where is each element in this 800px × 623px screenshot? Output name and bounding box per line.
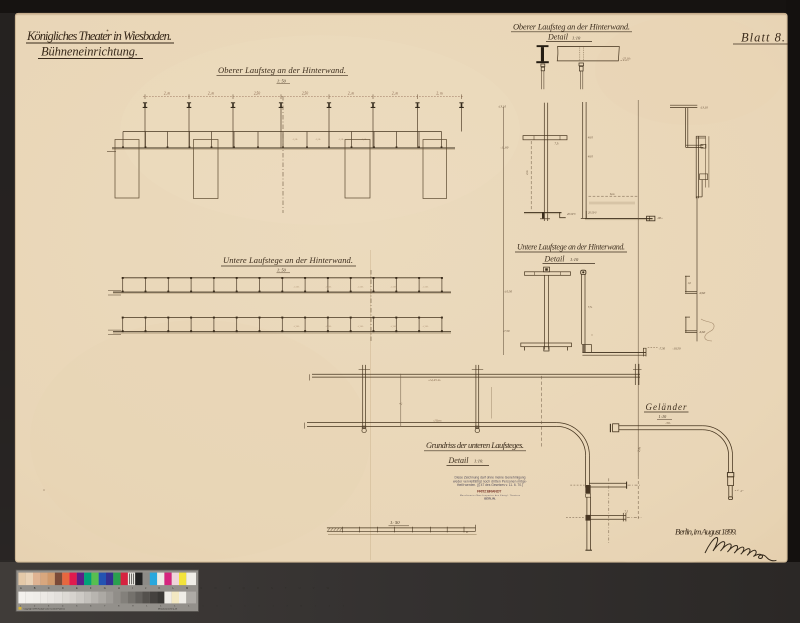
- svg-text:‹1,50›: ‹1,50›: [293, 325, 299, 328]
- svg-text:20·20·3: 20·20·3: [588, 211, 597, 214]
- svg-text:Untere Laufstege an der Hinte: Untere Laufstege an der Hinterwand.: [223, 255, 353, 265]
- svg-text:‹90›‹: ‹90›‹: [657, 216, 663, 220]
- svg-text:Geländer: Geländer: [646, 402, 687, 412]
- svg-text:Berlin, im August 1899.: Berlin, im August 1899.: [675, 526, 737, 536]
- svg-text:40/5: 40/5: [588, 155, 594, 159]
- svg-text:1: 50: 1: 50: [277, 78, 287, 83]
- svg-text:1 2 3 4 5 6 7 8 9 1 1 1 1 1 1: 1 2 3 4 5 6 7 8 9 1 1 1 1 1 1 1 1 1 1 2 …: [20, 605, 350, 607]
- svg-text:‹1,50›: ‹1,50›: [357, 285, 363, 288]
- svg-text:BERLIN.: BERLIN.: [484, 497, 496, 501]
- svg-text:Grundriss der unteren Laufsteg: Grundriss der unteren Laufsteges.: [426, 440, 524, 450]
- svg-text:Blatt 8.: Blatt 8.: [741, 31, 785, 45]
- svg-text:Oberer Laufsteg an der Hinter: Oberer Laufsteg an der Hinterwand.: [218, 65, 346, 75]
- svg-text:‹1,50›: ‹1,50›: [315, 138, 321, 141]
- svg-text:Untere Laufstege an der Hinte: Untere Laufstege an der Hinterwand.: [517, 243, 625, 252]
- svg-text:‹50›: ‹50›: [666, 421, 671, 425]
- svg-text:1:10: 1:10: [570, 257, 579, 262]
- svg-text:1: 50: 1: 50: [390, 520, 400, 525]
- svg-text:1:10: 1:10: [659, 414, 668, 419]
- svg-text:Miniaturansicht Q-13: Miniaturansicht Q-13: [158, 608, 178, 611]
- svg-text:1:10: 1:10: [572, 35, 581, 40]
- svg-text:theilt werden. (§ 47 des Geset: theilt werden. (§ 47 des Gesetzes v. 11.…: [457, 483, 523, 487]
- svg-text:‹1,50›: ‹1,50›: [325, 325, 331, 328]
- svg-text:FRITZ BRANDT: FRITZ BRANDT: [477, 489, 502, 494]
- svg-text:‹1,50›: ‹1,50›: [357, 325, 363, 328]
- svg-text:7,5: 7,5: [625, 510, 629, 513]
- svg-text:Königliches Theater in Wiesbad: Königliches Theater in Wiesbaden.: [26, 29, 172, 43]
- svg-text:Bühneneinrichtung.: Bühneneinrichtung.: [41, 45, 138, 59]
- svg-text:‹1,50›: ‹1,50›: [292, 138, 298, 141]
- svg-text:Oberer Laufsteg an der Hinter: Oberer Laufsteg an der Hinterwand.: [513, 22, 630, 32]
- svg-text:Detail: Detail: [448, 456, 470, 465]
- svg-text:A B C D E F G H I J K L M N O: A B C D E F G H I J K L M N O P Q R S T …: [20, 586, 335, 590]
- svg-text:40/5: 40/5: [588, 136, 594, 140]
- svg-text:1:10.: 1:10.: [474, 459, 483, 464]
- svg-text:‹1,50›: ‹1,50›: [390, 285, 396, 288]
- svg-text:Detail: Detail: [547, 33, 569, 42]
- svg-text:Copyright 1995 Kodak Color C: Copyright 1995 Kodak Color Control Patch…: [24, 608, 65, 611]
- svg-text:‹1,50›: ‹1,50›: [325, 285, 331, 288]
- svg-text:‹1,50›: ‹1,50›: [338, 138, 344, 141]
- svg-text:1: 50: 1: 50: [277, 268, 287, 273]
- svg-text:20·20·3: 20·20·3: [567, 213, 576, 216]
- svg-text:‹1,50›: ‹1,50›: [422, 285, 428, 288]
- svg-text:‹1,50›: ‹1,50›: [293, 285, 299, 288]
- svg-text:Detail: Detail: [544, 255, 566, 264]
- svg-text:‹1,50›: ‹1,50›: [390, 325, 396, 328]
- svg-text:7,5›: 7,5›: [588, 305, 593, 309]
- svg-text:a›: a›: [466, 531, 468, 534]
- svg-text:‹1,50›: ‹1,50›: [422, 325, 428, 328]
